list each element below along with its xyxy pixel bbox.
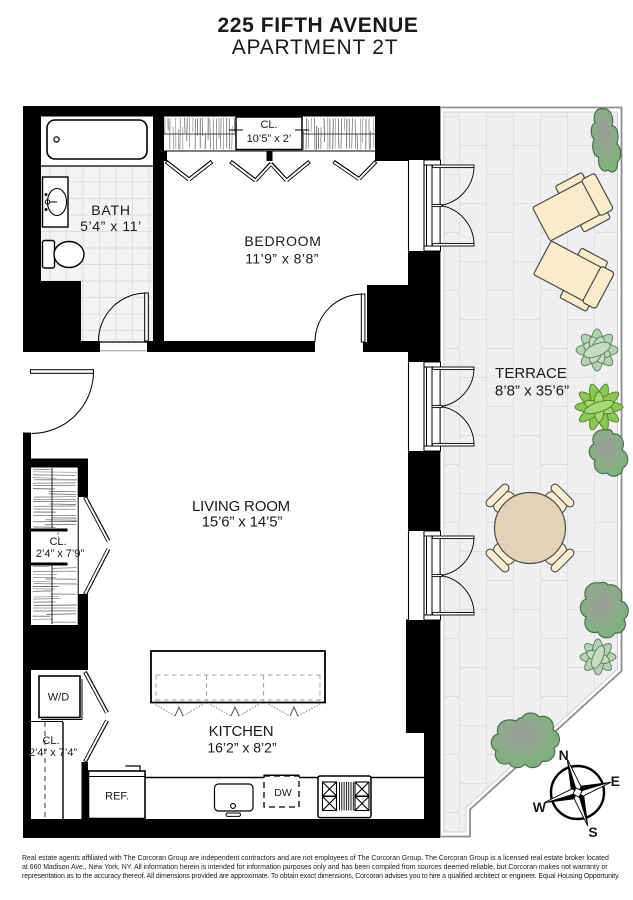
svg-text:E: E xyxy=(611,773,620,789)
svg-text:W: W xyxy=(533,799,547,815)
svg-text:N: N xyxy=(559,747,569,763)
svg-text:DW: DW xyxy=(274,787,292,799)
svg-text:BATH: BATH xyxy=(91,202,131,218)
svg-text:16’2” x 8’2”: 16’2” x 8’2” xyxy=(207,740,277,756)
svg-text:APARTMENT 2T: APARTMENT 2T xyxy=(232,36,399,59)
svg-text:225 FIFTH AVENUE: 225 FIFTH AVENUE xyxy=(218,14,419,37)
svg-text:REF.: REF. xyxy=(105,791,129,803)
svg-text:BEDROOM: BEDROOM xyxy=(244,233,321,249)
svg-text:2’4” x 7’9”: 2’4” x 7’9” xyxy=(36,548,85,560)
svg-text:2’4” x 7’4”: 2’4” x 7’4” xyxy=(29,747,78,759)
svg-text:CL.: CL. xyxy=(49,536,66,548)
svg-text:at 660 Madison Ave., New York,: at 660 Madison Ave., New York, NY. All i… xyxy=(22,864,608,871)
svg-text:11’9” x 8’8”: 11’9” x 8’8” xyxy=(245,251,319,267)
svg-text:KITCHEN: KITCHEN xyxy=(209,723,274,740)
svg-text:TERRACE: TERRACE xyxy=(495,365,567,382)
svg-text:5’4” x 11’: 5’4” x 11’ xyxy=(80,218,142,234)
svg-text:8’8” x 35’6”: 8’8” x 35’6” xyxy=(495,383,569,400)
svg-text:10’5” x 2’: 10’5” x 2’ xyxy=(247,133,292,145)
svg-text:W/D: W/D xyxy=(48,692,69,704)
svg-text:S: S xyxy=(588,824,597,840)
svg-text:CL.: CL. xyxy=(42,735,59,747)
svg-text:representation as to the accur: representation as to the accuracy thereo… xyxy=(22,873,620,880)
svg-text:Real estate agents affiliated: Real estate agents affiliated with The C… xyxy=(22,855,609,862)
svg-text:15’6” x 14’5”: 15’6” x 14’5” xyxy=(202,514,283,531)
svg-text:LIVING ROOM: LIVING ROOM xyxy=(192,498,290,515)
svg-text:CL.: CL. xyxy=(260,119,277,131)
